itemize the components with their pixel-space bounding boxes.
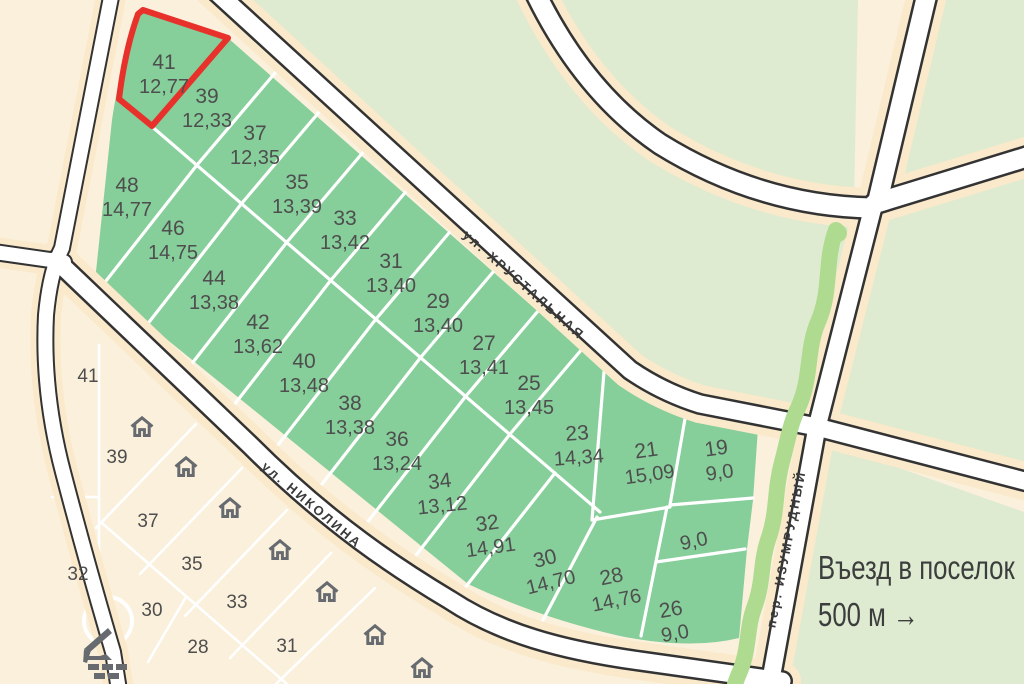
- plot-label-21[interactable]: 2115,09: [620, 435, 677, 491]
- plot-number: 31: [366, 249, 416, 274]
- plot-label-44[interactable]: 4413,38: [189, 266, 239, 316]
- plot-area: 13,40: [366, 274, 416, 299]
- plot-label-36[interactable]: 3613,24: [372, 427, 422, 477]
- plot-area: 13,48: [279, 374, 329, 399]
- plot-label-23[interactable]: 2314,34: [551, 419, 604, 472]
- plot-label-42[interactable]: 4213,62: [233, 310, 283, 360]
- plot-area: 12,35: [230, 146, 280, 171]
- plot-number: 39: [182, 84, 232, 109]
- plot-number: 41: [139, 50, 189, 75]
- sold-plot-label-31: 31: [276, 636, 297, 658]
- street-label-izumrudny: пер. ИЗУМРУДНЫЙ: [763, 469, 808, 629]
- plot-area: 13,41: [459, 356, 509, 381]
- plot-label-28[interactable]: 2814,76: [584, 559, 643, 618]
- plot-area: 9,0: [704, 459, 735, 488]
- plot-number: 44: [189, 266, 239, 291]
- entrance-sign-line2: 500 м →: [818, 592, 1015, 639]
- plot-number: 46: [148, 216, 198, 241]
- sold-plot-label-41: 41: [77, 366, 98, 388]
- plot-label-29[interactable]: 2913,40: [413, 289, 463, 339]
- plot-area: 13,42: [320, 231, 370, 256]
- plot-area: 9,0: [678, 527, 710, 557]
- sold-plot-label-33: 33: [226, 592, 247, 614]
- street-label-khrustalnaya: ул. ХРУСТАЛЬНАЯ: [460, 227, 588, 343]
- plot-label-32[interactable]: 3214,91: [461, 508, 518, 564]
- plot-label-19[interactable]: 199,0: [701, 434, 736, 487]
- plot-area: 13,38: [325, 416, 375, 441]
- plot-number: 36: [372, 427, 422, 452]
- plot-area: 14,77: [102, 198, 152, 223]
- plot-label-39[interactable]: 3912,33: [182, 84, 232, 134]
- plot-number: 29: [413, 289, 463, 314]
- label-layer: ул. ХРУСТАЛЬНАЯ ул. НИКОЛИНА пер. ИЗУМРУ…: [0, 0, 1024, 684]
- plot-number: 35: [272, 170, 322, 195]
- street-label-nikolina: ул. НИКОЛИНА: [259, 459, 365, 552]
- plot-number: 37: [230, 121, 280, 146]
- sold-plot-label-39: 39: [106, 447, 127, 469]
- plot-number: 25: [504, 371, 554, 396]
- plot-label-31[interactable]: 3113,40: [366, 249, 416, 299]
- plot-number: 33: [320, 206, 370, 231]
- plot-label-34[interactable]: 3413,12: [413, 467, 468, 522]
- plot-area: 14,75: [148, 241, 198, 266]
- entrance-sign: Въезд в поселок 500 м →: [818, 545, 1015, 639]
- plot-number: 40: [279, 349, 329, 374]
- plot-label-35[interactable]: 3513,39: [272, 170, 322, 220]
- plot-label-48[interactable]: 4814,77: [102, 173, 152, 223]
- plot-number: 23: [551, 419, 603, 447]
- plot-number: 38: [325, 391, 375, 416]
- plot-area: 12,33: [182, 109, 232, 134]
- plot-number: 48: [102, 173, 152, 198]
- land-plots-map: ул. ХРУСТАЛЬНАЯ ул. НИКОЛИНА пер. ИЗУМРУ…: [0, 0, 1024, 684]
- plot-number: 42: [233, 310, 283, 335]
- plot-area: 13,40: [413, 314, 463, 339]
- plot-area: 13,38: [189, 291, 239, 316]
- entrance-sign-line1: Въезд в поселок: [818, 545, 1015, 592]
- plot-label-33[interactable]: 3313,42: [320, 206, 370, 256]
- sold-plot-label-32: 32: [67, 564, 88, 586]
- plot-area: 13,62: [233, 335, 283, 360]
- plot-area: 9,0: [659, 620, 691, 649]
- sold-plot-label-35: 35: [181, 554, 202, 576]
- plot-area: 13,39: [272, 195, 322, 220]
- plot-label-26[interactable]: 269,0: [655, 595, 691, 649]
- plot-area: 14,34: [553, 444, 605, 472]
- sold-plot-label-28: 28: [187, 637, 208, 659]
- plot-label-38[interactable]: 3813,38: [325, 391, 375, 441]
- plot-area: 15,09: [623, 460, 676, 492]
- plot-label-46[interactable]: 4614,75: [148, 216, 198, 266]
- plot-label-25[interactable]: 2513,45: [504, 371, 554, 421]
- plot-area: 14,91: [464, 533, 517, 565]
- sold-plot-label-30: 30: [141, 600, 162, 622]
- plot-label-30[interactable]: 3014,70: [518, 541, 579, 602]
- plot-label-37[interactable]: 3712,35: [230, 121, 280, 171]
- plot-label-40[interactable]: 4013,48: [279, 349, 329, 399]
- sold-plot-label-37: 37: [137, 511, 158, 533]
- plot-number: 27: [459, 331, 509, 356]
- plot-area: 13,45: [504, 396, 554, 421]
- plot-label-9,0[interactable]: 9,0: [678, 527, 710, 557]
- plot-label-27[interactable]: 2713,41: [459, 331, 509, 381]
